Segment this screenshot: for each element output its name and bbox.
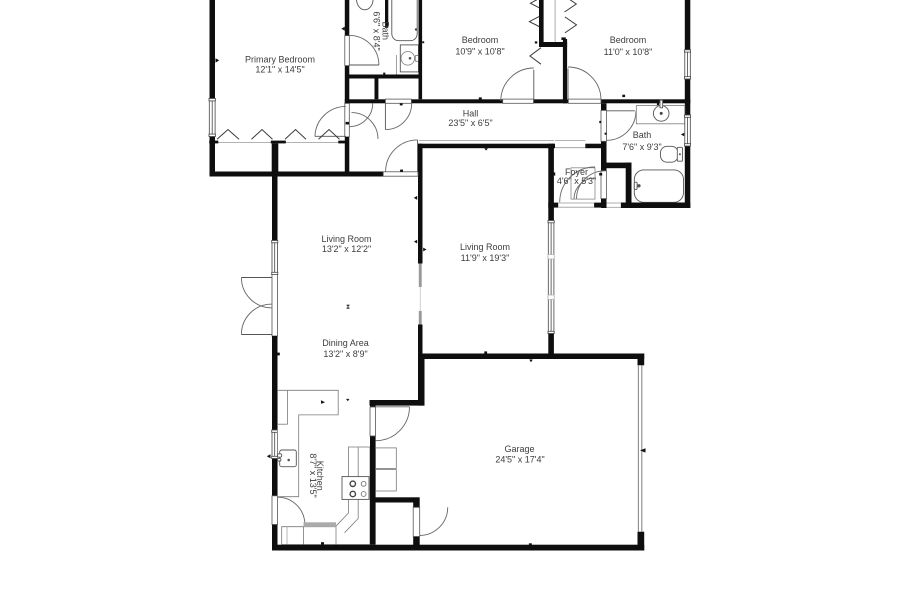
svg-text:6'6" x 8'4": 6'6" x 8'4" xyxy=(372,11,382,50)
svg-text:12'1" x 14'5": 12'1" x 14'5" xyxy=(255,65,304,75)
svg-text:Bedroom: Bedroom xyxy=(462,35,499,45)
svg-text:13'2" x 8'9": 13'2" x 8'9" xyxy=(323,349,367,359)
svg-text:Living Room: Living Room xyxy=(321,234,371,244)
svg-text:11'0" x 10'8": 11'0" x 10'8" xyxy=(604,47,653,57)
svg-text:Hall: Hall xyxy=(463,109,479,119)
svg-text:Bedroom: Bedroom xyxy=(610,35,647,45)
svg-text:11'9" x 19'3": 11'9" x 19'3" xyxy=(461,253,510,263)
svg-text:Garage: Garage xyxy=(504,444,534,454)
svg-text:8'7" x 13'5": 8'7" x 13'5" xyxy=(308,453,318,497)
svg-text:Bath: Bath xyxy=(633,130,652,140)
svg-text:Dining Area: Dining Area xyxy=(322,338,369,348)
svg-text:23'5" x 6'5": 23'5" x 6'5" xyxy=(448,118,492,128)
svg-text:4'6" x 5'3": 4'6" x 5'3" xyxy=(557,176,596,186)
svg-text:7'6" x 9'3": 7'6" x 9'3" xyxy=(622,142,661,152)
svg-text:13'2" x 12'2": 13'2" x 12'2" xyxy=(322,244,371,254)
svg-text:10'9" x 10'8": 10'9" x 10'8" xyxy=(455,47,504,57)
svg-text:24'5" x 17'4": 24'5" x 17'4" xyxy=(495,455,544,465)
svg-text:Living Room: Living Room xyxy=(460,242,510,252)
svg-text:Primary Bedroom: Primary Bedroom xyxy=(245,55,315,65)
